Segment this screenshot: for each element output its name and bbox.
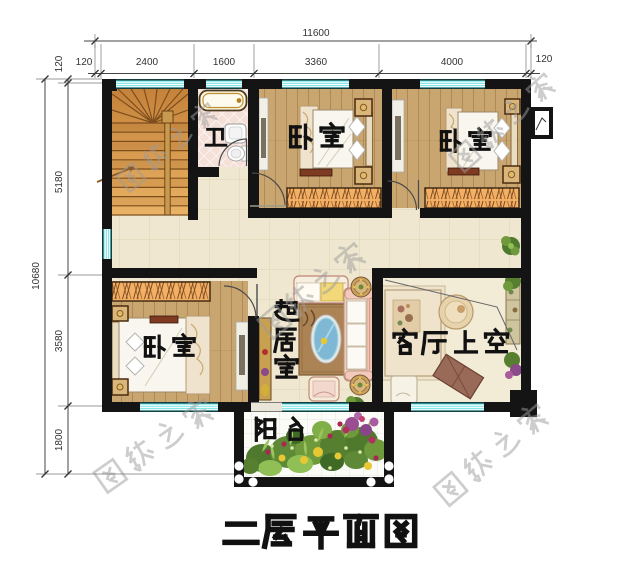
svg-text:120: 120 (76, 57, 93, 68)
svg-text:120: 120 (54, 55, 65, 72)
svg-text:1600: 1600 (213, 57, 236, 68)
svg-text:3360: 3360 (305, 57, 328, 68)
svg-text:120: 120 (536, 54, 553, 65)
svg-text:2400: 2400 (136, 57, 159, 68)
svg-text:4000: 4000 (441, 57, 464, 68)
svg-text:1800: 1800 (54, 428, 65, 451)
svg-text:11600: 11600 (302, 28, 330, 39)
svg-text:10680: 10680 (31, 262, 42, 290)
svg-text:3580: 3580 (54, 329, 65, 352)
svg-text:5180: 5180 (54, 170, 65, 193)
